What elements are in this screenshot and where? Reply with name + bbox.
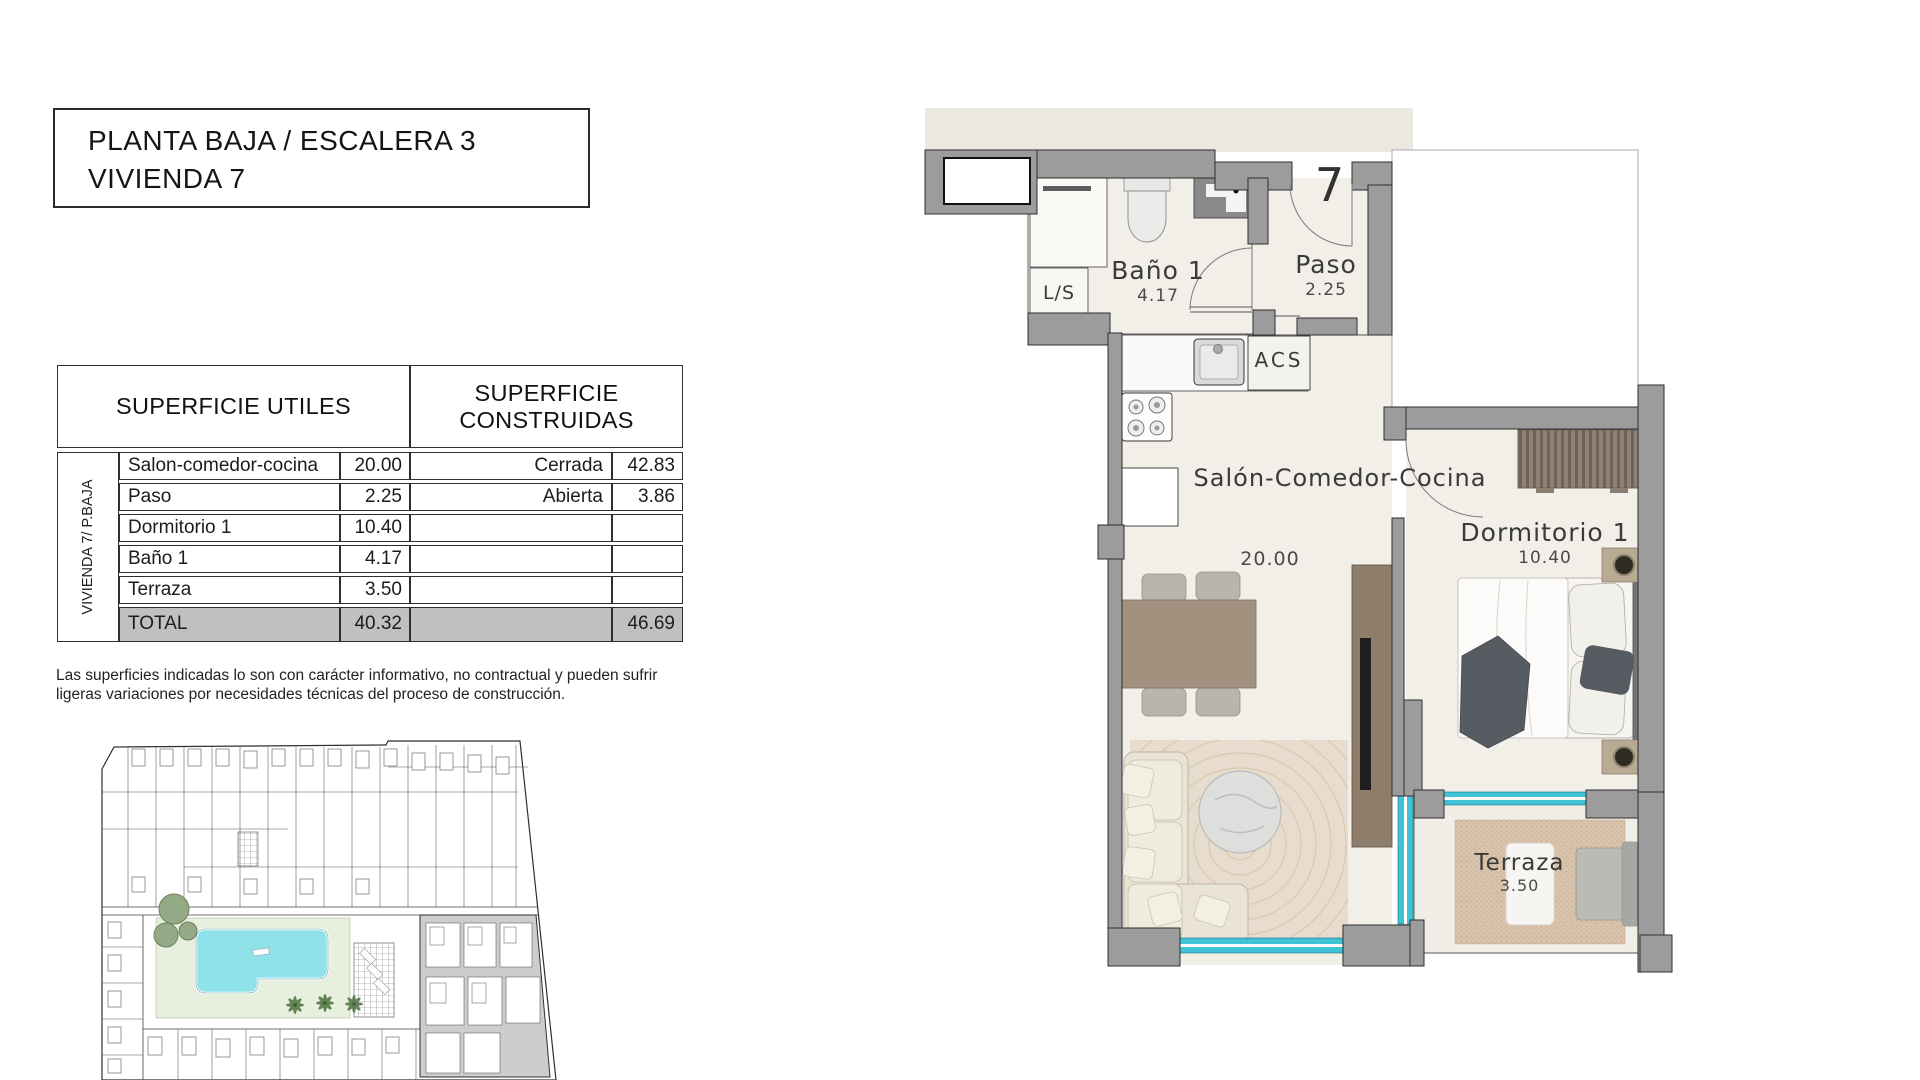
window-salon [1180,938,1343,953]
table-group-cell: VIVIENDA 7/ P.BAJA [57,452,119,642]
tv [1360,638,1371,790]
built-area-cell [612,545,683,573]
total-useful-cell: 40.32 [340,607,410,642]
laundry-label: L/S [1032,282,1086,304]
built-area-cell: 3.86 [612,483,683,511]
total-label-cell: TOTAL [119,607,340,642]
built-name-cell [410,514,612,542]
room-area-paso: 2.25 [1266,280,1386,300]
built-name-cell: Abierta [410,483,612,511]
unit-number: 7 [1300,158,1360,212]
site-plan-drawing [88,737,570,1080]
title-box: PLANTA BAJA / ESCALERA 3 VIVIENDA 7 [53,108,590,208]
bed [1458,575,1649,748]
tv-console [1352,565,1392,847]
table-header-useful: SUPERFICIE UTILES [57,365,410,448]
kitchen-sink [1194,339,1244,385]
stove [1122,393,1172,441]
built-name-cell [410,545,612,573]
disclaimer-line2: ligeras variaciones por necesidades técn… [56,685,696,704]
washbasin-counter [1030,178,1107,267]
room-label-bano: Baño 1 [1098,256,1218,285]
site-key-plan [88,737,570,1080]
room-name-cell: Dormitorio 1 [119,514,340,542]
built-name-cell [410,576,612,604]
room-area-cell: 10.40 [340,514,410,542]
built-area-cell [612,576,683,604]
room-name-cell: Salon-comedor-cocina [119,452,340,480]
room-area-bano: 4.17 [1098,286,1218,306]
room-label-dormitorio: Dormitorio 1 [1455,518,1635,547]
page-title-line2: VIVIENDA 7 [88,160,588,198]
disclaimer: Las superficies indicadas lo son con car… [56,666,696,704]
room-area-salon: 20.00 [1235,548,1305,570]
built-area-cell: 42.83 [612,452,683,480]
page-title-line1: PLANTA BAJA / ESCALERA 3 [88,122,588,160]
areas-table: SUPERFICIE UTILES SUPERFICIE CONSTRUIDAS… [57,365,683,643]
room-label-paso: Paso [1266,250,1386,279]
room-name-cell: Terraza [119,576,340,604]
coffee-table [1199,771,1281,853]
room-label-salon: Salón-Comedor-Cocina [1180,464,1500,492]
room-area-cell: 20.00 [340,452,410,480]
room-name-cell: Baño 1 [119,545,340,573]
room-area-terraza: 3.50 [1452,876,1587,895]
fridge [1122,468,1178,526]
built-name-cell: Cerrada [410,452,612,480]
plan-sheet: PLANTA BAJA / ESCALERA 3 VIVIENDA 7 SUPE… [0,0,1920,1080]
room-area-cell: 2.25 [340,483,410,511]
room-label-terraza: Terraza [1452,850,1587,876]
window-salon-terraza [1398,796,1413,924]
pool-deck [354,943,394,1017]
room-area-dormitorio: 10.40 [1455,548,1635,568]
room-area-cell: 3.50 [340,576,410,604]
table-header-built: SUPERFICIE CONSTRUIDAS [410,365,683,448]
built-area-cell [612,514,683,542]
table-group-label: VIVIENDA 7/ P.BAJA [58,453,118,641]
shaft [944,158,1030,204]
wardrobe [1518,430,1648,493]
room-name-cell: Paso [119,483,340,511]
room-area-cell: 4.17 [340,545,410,573]
disclaimer-line1: Las superficies indicadas lo son con car… [56,666,696,685]
water-heater-label: ACS [1250,348,1308,372]
window-dormitorio [1443,792,1586,805]
total-spacer-cell [410,607,612,642]
total-built-cell: 46.69 [612,607,683,642]
